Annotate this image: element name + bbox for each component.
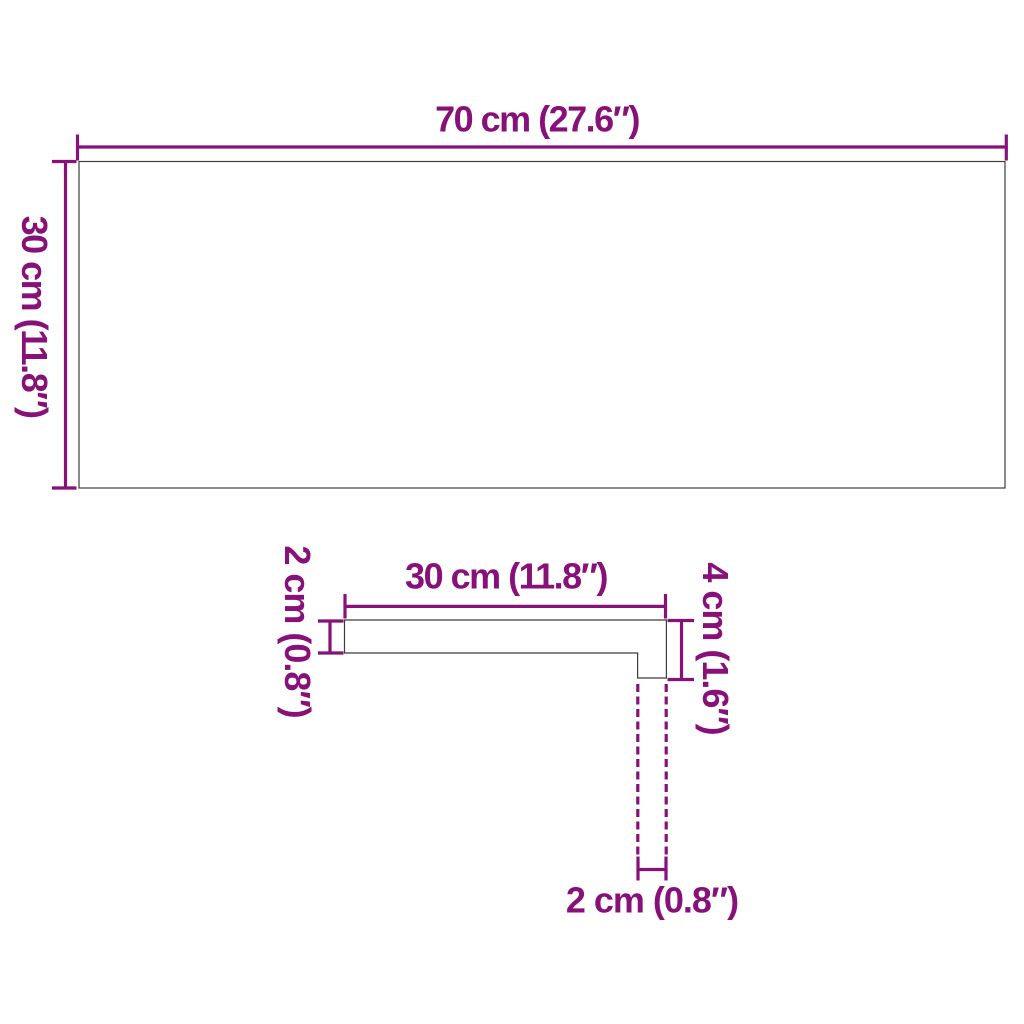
- svg-text:30 cm (11.8″): 30 cm (11.8″): [405, 556, 607, 597]
- svg-text:30 cm (11.8″): 30 cm (11.8″): [14, 216, 55, 418]
- svg-text:2 cm (0.8″): 2 cm (0.8″): [566, 880, 738, 921]
- svg-text:4 cm (1.6″): 4 cm (1.6″): [695, 562, 736, 734]
- svg-text:70 cm (27.6″): 70 cm (27.6″): [435, 99, 639, 140]
- svg-text:2 cm (0.8″): 2 cm (0.8″): [277, 545, 318, 717]
